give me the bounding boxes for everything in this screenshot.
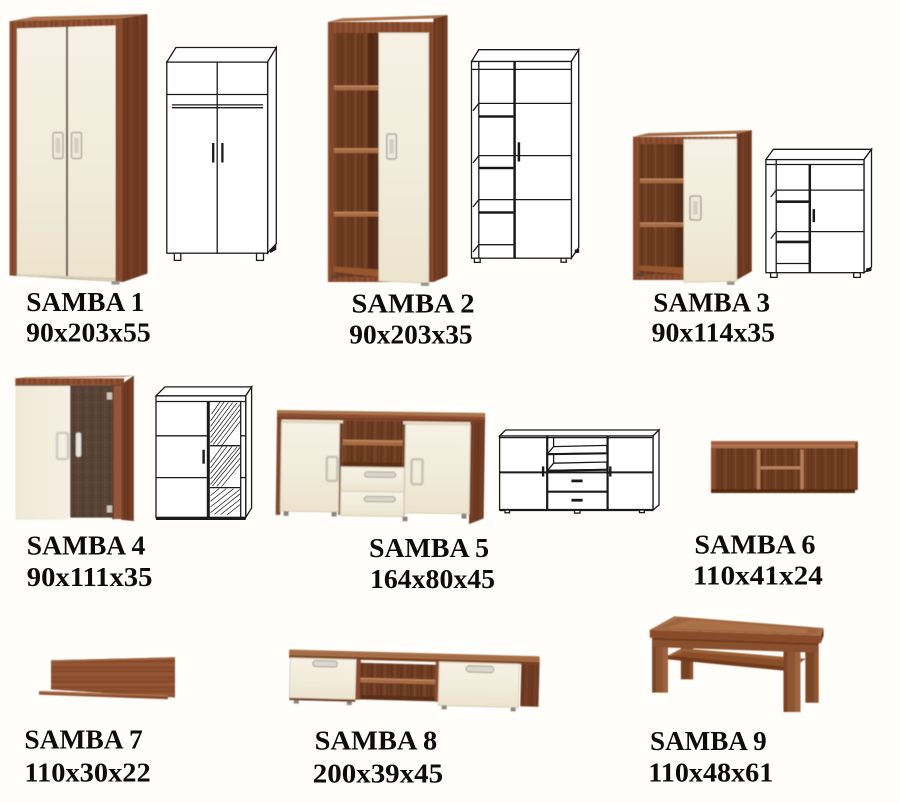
- svg-text:110x30x22: 110x30x22: [24, 756, 150, 787]
- svg-text:200x39x45: 200x39x45: [313, 758, 443, 789]
- svg-text:SAMBA 6: SAMBA 6: [694, 529, 815, 560]
- svg-text:90x203x35: 90x203x35: [349, 319, 472, 350]
- svg-text:SAMBA 9: SAMBA 9: [650, 725, 767, 756]
- svg-text:164x80x45: 164x80x45: [370, 563, 495, 594]
- svg-text:SAMBA 1: SAMBA 1: [26, 286, 144, 317]
- svg-text:110x41x24: 110x41x24: [693, 560, 823, 591]
- svg-text:90x203x55: 90x203x55: [26, 316, 151, 347]
- svg-text:90x114x35: 90x114x35: [652, 317, 775, 348]
- svg-text:SAMBA 5: SAMBA 5: [369, 532, 489, 563]
- svg-text:SAMBA 4: SAMBA 4: [27, 530, 146, 561]
- svg-text:90x111x35: 90x111x35: [27, 561, 153, 592]
- svg-text:SAMBA 3: SAMBA 3: [653, 287, 770, 318]
- svg-text:SAMBA 7: SAMBA 7: [24, 723, 143, 754]
- svg-text:SAMBA 2: SAMBA 2: [352, 288, 475, 319]
- svg-text:110x48x61: 110x48x61: [648, 757, 773, 788]
- svg-text:SAMBA 8: SAMBA 8: [315, 725, 438, 756]
